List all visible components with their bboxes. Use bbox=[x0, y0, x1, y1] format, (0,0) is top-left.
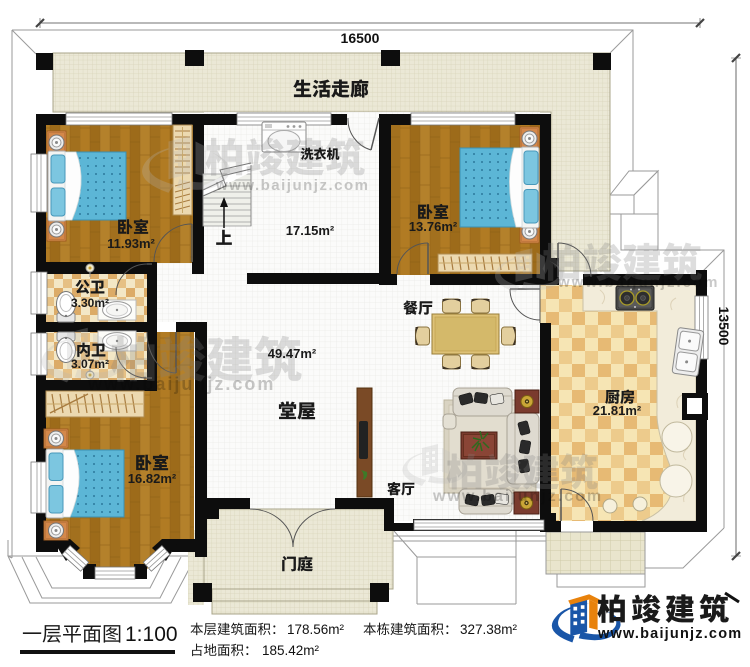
svg-text:21.81m²: 21.81m² bbox=[593, 403, 642, 418]
svg-text:1:100: 1:100 bbox=[125, 623, 178, 646]
svg-text:13500: 13500 bbox=[716, 307, 732, 346]
svg-text:11.93m²: 11.93m² bbox=[107, 236, 155, 251]
svg-text:3.30m²: 3.30m² bbox=[71, 296, 109, 310]
svg-text:49.47m²: 49.47m² bbox=[268, 346, 317, 361]
svg-text:www.baijunjz.com: www.baijunjz.com bbox=[557, 274, 719, 291]
svg-text:3.07m²: 3.07m² bbox=[71, 357, 109, 371]
svg-text:185.42m²: 185.42m² bbox=[262, 643, 320, 658]
svg-text:www.baijunjz.com: www.baijunjz.com bbox=[215, 177, 369, 194]
svg-text:www.baijunjz.com: www.baijunjz.com bbox=[432, 488, 603, 505]
svg-text:16500: 16500 bbox=[341, 30, 380, 46]
svg-text:16.82m²: 16.82m² bbox=[128, 471, 177, 486]
svg-text:13.76m²: 13.76m² bbox=[409, 219, 458, 234]
svg-text:www.baijunjz.com: www.baijunjz.com bbox=[87, 374, 275, 394]
svg-text:17.15m²: 17.15m² bbox=[286, 223, 335, 238]
svg-text:www.baijunjz.com: www.baijunjz.com bbox=[597, 626, 742, 642]
svg-text:178.56m²: 178.56m² bbox=[287, 622, 345, 637]
svg-text:327.38m²: 327.38m² bbox=[460, 622, 518, 637]
